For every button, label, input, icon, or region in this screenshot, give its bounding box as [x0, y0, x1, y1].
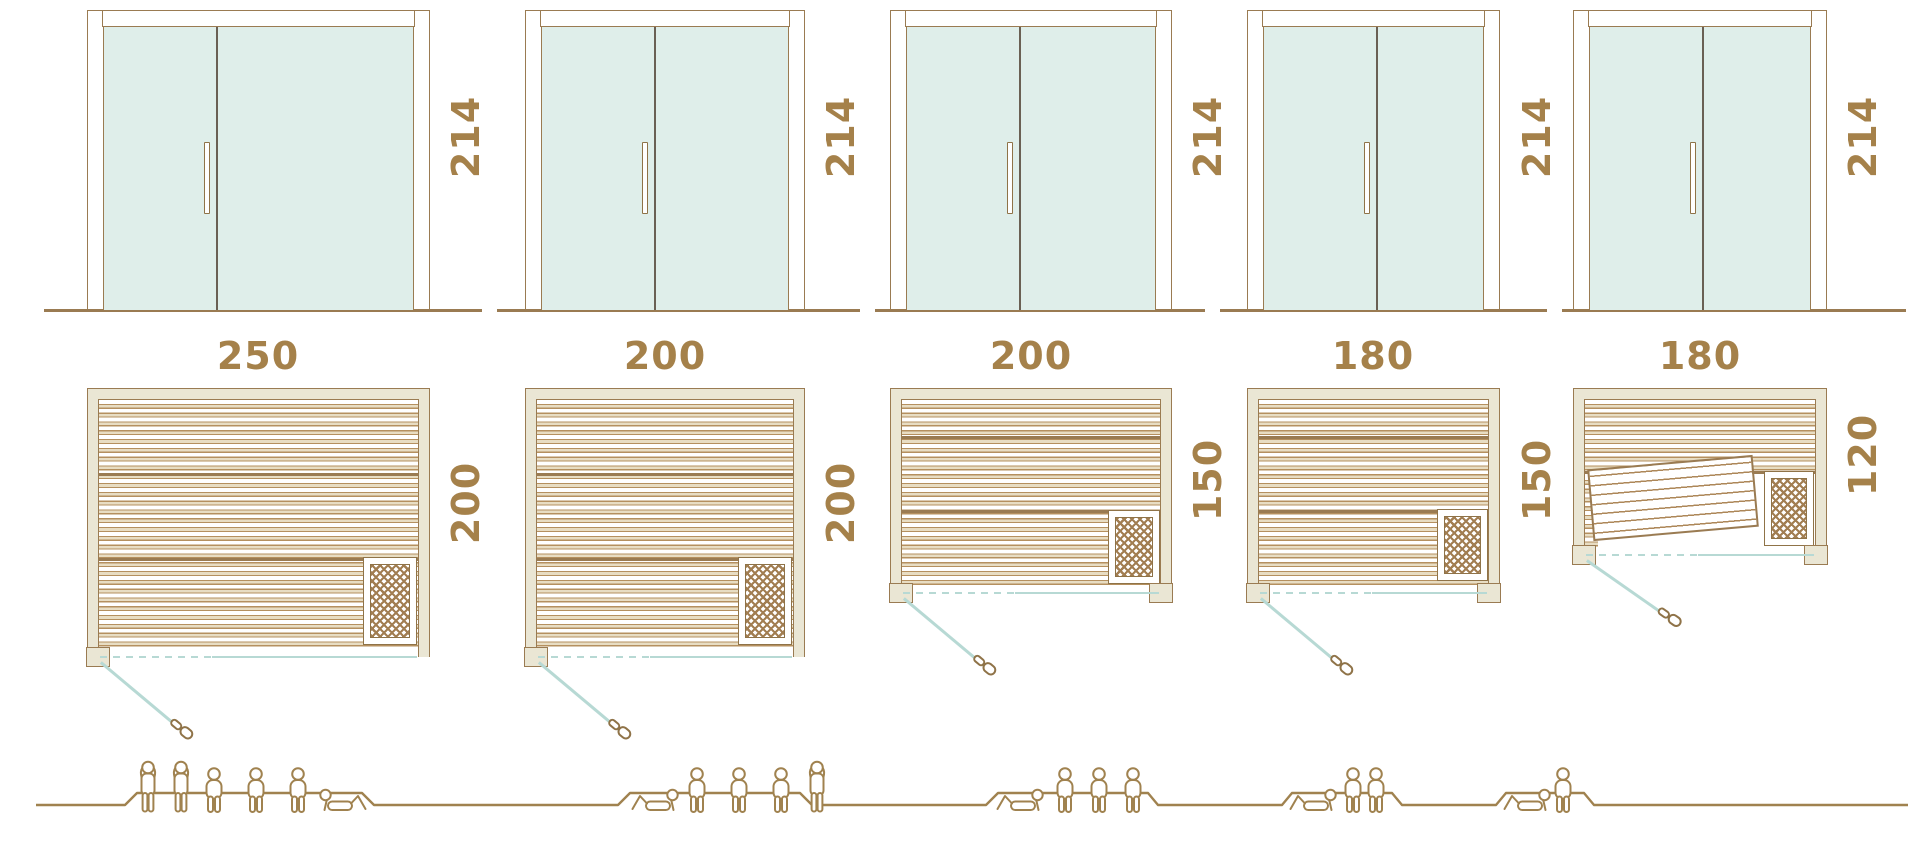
door-top-rail [102, 10, 415, 27]
capacity-group-4 [1291, 768, 1384, 812]
door-top-rail [1262, 10, 1485, 27]
door-top-rail [1588, 10, 1812, 27]
door-top-rail [540, 10, 790, 27]
glass-wall-line [1698, 554, 1814, 557]
capacity-group-5 [1505, 768, 1571, 812]
ground-line [36, 793, 1908, 805]
door-opening-dashed [1260, 592, 1372, 595]
door-frame-left [1247, 10, 1264, 310]
floor-plan-1 [87, 388, 430, 657]
capacity-group-2 [633, 762, 825, 812]
plan-depth-label: 200 [819, 443, 863, 563]
door-height-label: 214 [1186, 77, 1230, 197]
plan-interior [98, 399, 419, 657]
door-leaf-divider [1376, 27, 1378, 311]
plan-width-label: 180 [1293, 334, 1453, 378]
floor-plan-5 [1573, 388, 1827, 555]
glass-front [907, 26, 1155, 311]
door-height-label: 214 [819, 77, 863, 197]
door-leaf-divider [216, 27, 218, 311]
door-leaf-divider [1019, 27, 1021, 311]
heater-icon [1764, 471, 1814, 546]
door-elevation-5 [1573, 10, 1827, 310]
floor-plan-4 [1247, 388, 1500, 593]
door-leaf-divider [1702, 27, 1704, 311]
plan-depth-label: 150 [1186, 420, 1230, 540]
plan-interior [1258, 399, 1489, 593]
door-handle-icon [204, 142, 210, 214]
plan-interior [536, 399, 794, 657]
glass-wall-line [650, 656, 792, 659]
door-elevation-4 [1247, 10, 1500, 310]
door-opening-dashed [538, 656, 650, 659]
door-opening-dashed [903, 592, 1015, 595]
plan-depth-label: 150 [1515, 420, 1559, 540]
door-leaf-divider [654, 27, 656, 311]
plan-interior [901, 399, 1161, 593]
door-height-label: 214 [1515, 77, 1559, 197]
door-frame-left [1573, 10, 1590, 310]
plan-handle-icon [1654, 602, 1686, 631]
tilted-lounger-bench [1587, 455, 1759, 541]
door-handle-icon [642, 142, 648, 214]
capacity-group-1 [141, 762, 366, 812]
glass-wall-line [1015, 592, 1159, 595]
plan-width-label: 250 [178, 334, 338, 378]
door-frame-right [1810, 10, 1827, 310]
glass-front [1264, 26, 1483, 311]
capacity-group-3 [998, 768, 1141, 812]
door-opening-dashed [100, 656, 212, 659]
plan-depth-label: 200 [444, 443, 488, 563]
plan-handle-icon [1326, 650, 1358, 680]
glass-wall-line [1372, 592, 1487, 595]
plan-width-label: 200 [951, 334, 1111, 378]
door-height-label: 214 [1841, 77, 1885, 197]
door-elevation-1 [87, 10, 430, 310]
door-top-rail [905, 10, 1157, 27]
floor-plan-3 [890, 388, 1172, 593]
glass-front [542, 26, 788, 311]
door-frame-left [890, 10, 907, 310]
plan-interior [1584, 399, 1816, 555]
floor-plan-2 [525, 388, 805, 657]
plan-width-label: 180 [1620, 334, 1780, 378]
sauna-size-diagram: 214 250 200 214 200 200 [0, 0, 1920, 843]
heater-icon [1108, 510, 1160, 584]
door-opening-dashed [1586, 554, 1698, 557]
heater-icon [738, 557, 792, 645]
glass-front [1590, 26, 1810, 311]
door-height-label: 214 [444, 77, 488, 197]
door-handle-icon [1007, 142, 1013, 214]
plan-handle-icon [969, 650, 1001, 680]
heater-icon [363, 557, 417, 645]
door-handle-icon [1364, 142, 1370, 214]
glass-front [104, 26, 413, 311]
door-frame-left [87, 10, 104, 310]
door-handle-icon [1690, 142, 1696, 214]
capacity-illustration [0, 740, 1920, 843]
door-elevation-3 [890, 10, 1172, 310]
door-elevation-2 [525, 10, 805, 310]
bench-edge [99, 473, 418, 476]
heater-icon [1437, 509, 1488, 581]
bench-edge [537, 473, 793, 476]
door-frame-right [1155, 10, 1172, 310]
door-frame-right [1483, 10, 1500, 310]
plan-width-label: 200 [585, 334, 745, 378]
door-frame-right [788, 10, 805, 310]
door-frame-left [525, 10, 542, 310]
glass-wall-line [212, 656, 417, 659]
door-frame-right [413, 10, 430, 310]
bench-edge [1259, 436, 1488, 439]
bench-edge [902, 436, 1160, 439]
plan-depth-label: 120 [1841, 395, 1885, 515]
